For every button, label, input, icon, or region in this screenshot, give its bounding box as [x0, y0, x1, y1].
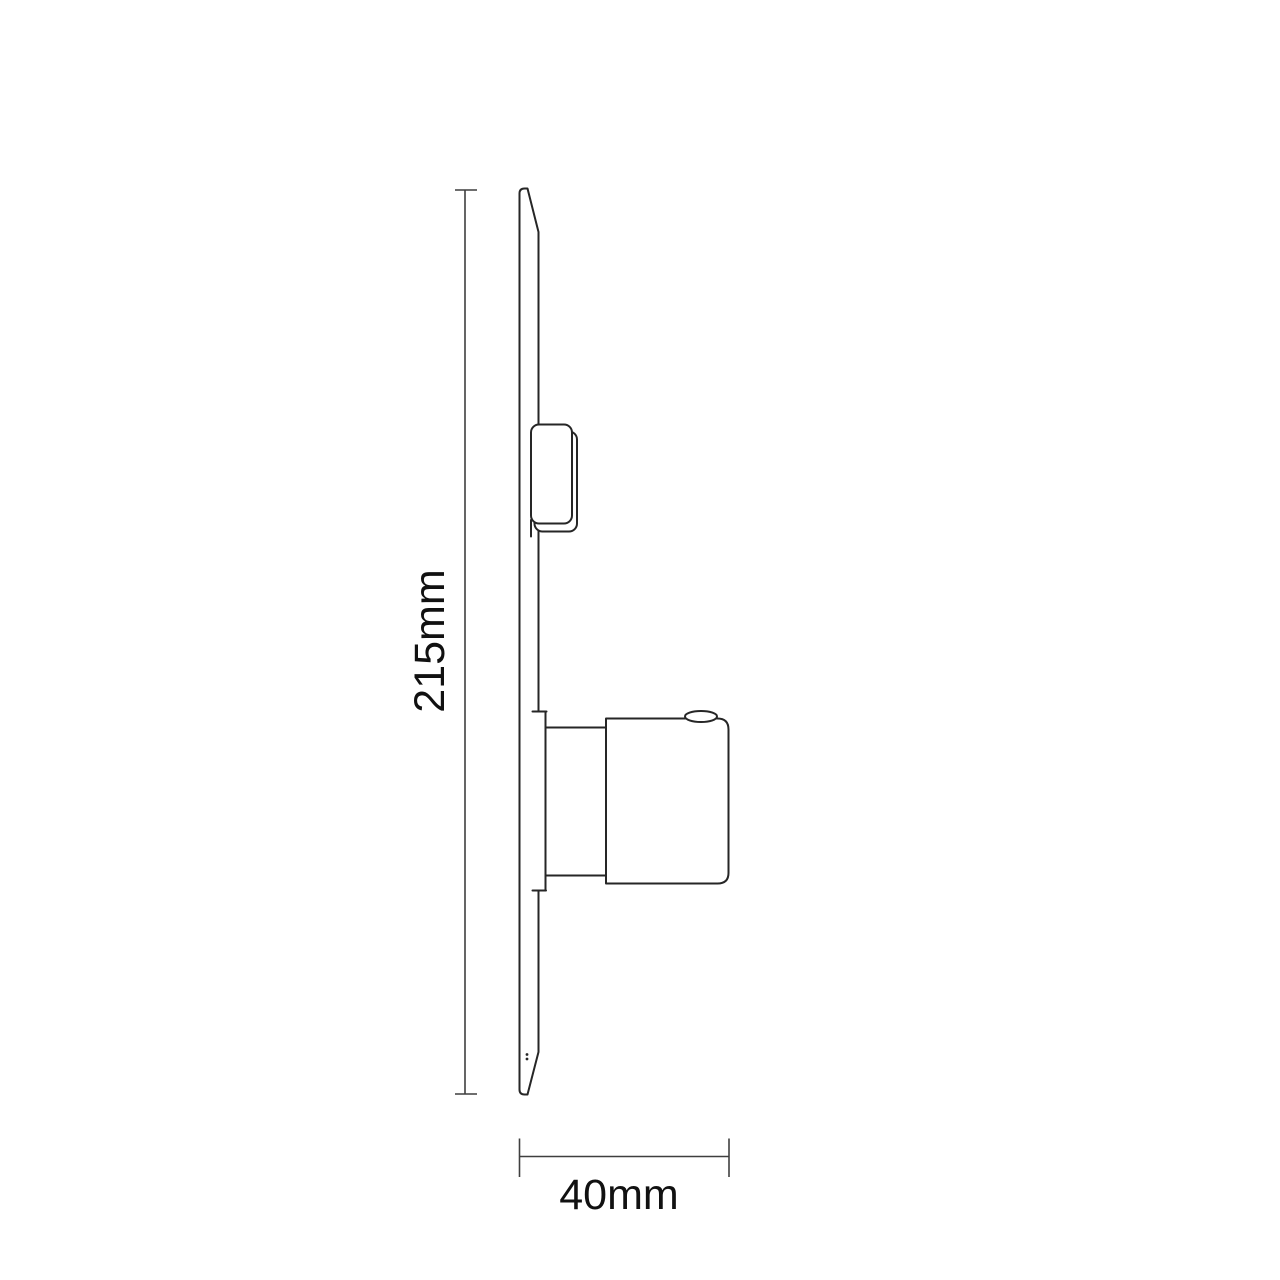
control-knob-profile — [606, 719, 729, 884]
stray-dot-1 — [526, 1053, 529, 1056]
stray-dot-2 — [526, 1058, 529, 1061]
wall-plate-profile — [520, 189, 539, 1095]
drawing-canvas: 215mm 40mm — [0, 0, 1280, 1280]
knob-top-detail-ellipse — [685, 711, 717, 722]
flange-backfill — [536, 713, 542, 890]
dimension-lines — [455, 190, 729, 1177]
technical-drawing: 215mm 40mm — [0, 0, 1280, 1280]
height-dimension-label: 215mm — [406, 569, 454, 712]
object-lines — [520, 189, 729, 1095]
button-side-profile — [531, 425, 572, 524]
width-dimension-label: 40mm — [559, 1171, 678, 1219]
